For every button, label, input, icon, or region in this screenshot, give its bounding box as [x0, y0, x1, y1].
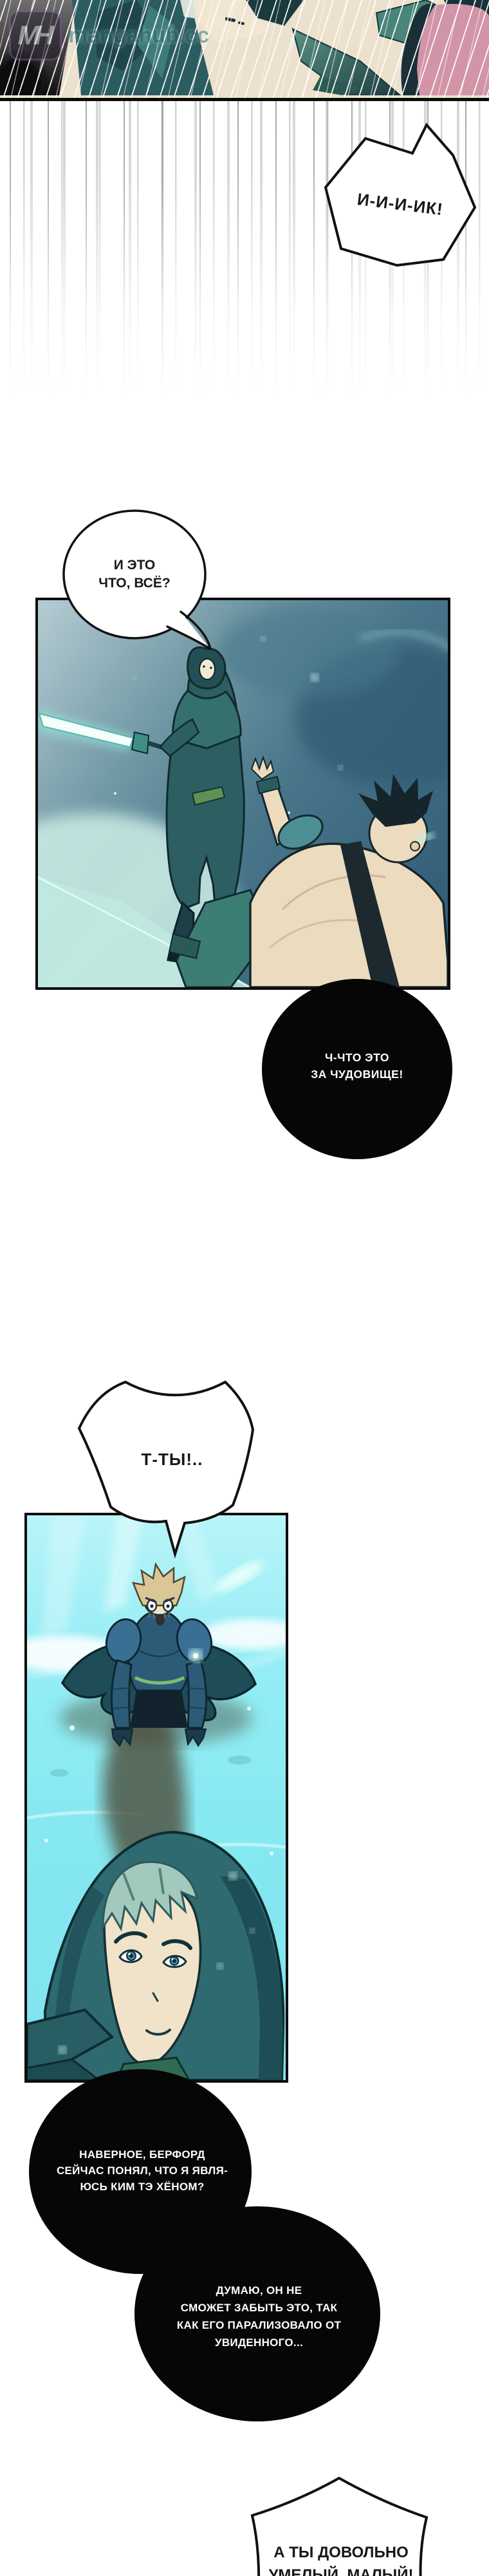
- site-watermark: MH mangahub.cc: [9, 10, 209, 61]
- watermark-logo: MH: [9, 10, 62, 61]
- paralyzed-text: ДУМАЮ, ОН НЕ СМОЖЕТ ЗАБЫТЬ ЭТО, ТАК КАК …: [138, 2282, 380, 2351]
- text-line: ЗА ЧУДОВИЩЕ!: [267, 1066, 447, 1083]
- text-line: УМЕЛЫЙ, МАЛЫЙ!: [257, 2564, 425, 2576]
- monster-text: Ч-ЧТО ЭТО ЗА ЧУДОВИЩЕ!: [267, 1049, 447, 1083]
- text-line: УВИДЕННОГО...: [138, 2334, 380, 2351]
- panel-knight-and-hooded-scene: [24, 1513, 288, 2083]
- black-thought-bubbles: [26, 2067, 386, 2428]
- webtoon-page: MH mangahub.cc И-И-И-ИК! И ЭТО ЧТО, ВСЁ?: [0, 0, 489, 2576]
- you-text: Т-ТЫ!..: [103, 1450, 241, 1470]
- skilled-text: А ТЫ ДОВОЛЬНО УМЕЛЫЙ, МАЛЫЙ!: [257, 2541, 425, 2576]
- text-line: И ЭТО: [64, 556, 205, 574]
- shocked-mouth: [156, 1615, 164, 1625]
- text-line: СМОЖЕТ ЗАБЫТЬ ЭТО, ТАК: [138, 2299, 380, 2316]
- text-line: ДУМАЮ, ОН НЕ: [138, 2282, 380, 2299]
- text-line: СЕЙЧАС ПОНЯЛ, ЧТО Я ЯВЛЯ-: [39, 2163, 246, 2179]
- text-line: Ч-ЧТО ЭТО: [267, 1049, 447, 1066]
- watermark-initials: MH: [17, 20, 53, 51]
- text-line: А ТЫ ДОВОЛЬНО: [257, 2541, 425, 2564]
- text-line: НАВЕРНОЕ, БЕРФОРД: [39, 2146, 246, 2163]
- watermark-site-text: mangahub.cc: [68, 23, 209, 48]
- text-line: ЮСЬ КИМ ТЭ ХЁНОМ?: [39, 2179, 246, 2195]
- text-line: КАК ЕГО ПАРАЛИЗОВАЛО ОТ: [138, 2316, 380, 2334]
- is-that-all-text: И ЭТО ЧТО, ВСЁ?: [64, 556, 205, 592]
- panel-2-art: [27, 1515, 286, 2080]
- realization-text: НАВЕРНОЕ, БЕРФОРД СЕЙЧАС ПОНЯЛ, ЧТО Я ЯВ…: [39, 2146, 246, 2195]
- text-line: ЧТО, ВСЁ?: [64, 574, 205, 592]
